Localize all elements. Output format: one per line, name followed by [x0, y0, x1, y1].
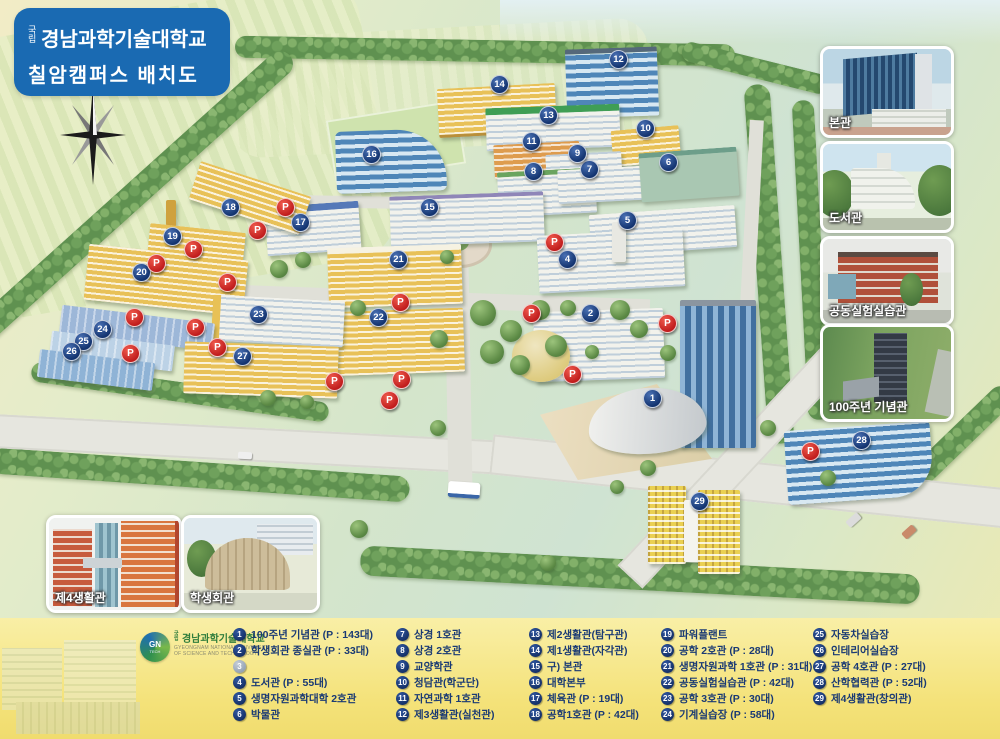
legend-item: 27공학 4호관 (P : 27대) [813, 658, 927, 674]
parking-marker: P [380, 391, 399, 410]
legend-item-number: 5 [233, 692, 246, 705]
photo-100th-hall: 100주년 기념관 [820, 324, 954, 422]
legend-item: 10청담관(학군단) [396, 674, 494, 690]
legend-item-number: 20 [661, 644, 674, 657]
legend-item: 8상경 2호관 [396, 642, 494, 658]
legend-item-number: 4 [233, 676, 246, 689]
photo-label: 본관 [829, 114, 851, 131]
building-marker-4: 4 [558, 250, 577, 269]
building-marker-14: 14 [490, 75, 509, 94]
photo-bonkwan: 본관 [820, 46, 954, 138]
legend-item-number: 14 [529, 644, 542, 657]
legend-item: 15구) 본관 [529, 658, 639, 674]
legend-item-number: 23 [661, 692, 674, 705]
legend-item: 28산학협력관 (P : 52대) [813, 674, 927, 690]
building-marker-10: 10 [636, 119, 655, 138]
legend-item: 26인테리어실습장 [813, 642, 927, 658]
legend-item-label: 청담관(학군단) [414, 675, 479, 690]
parking-marker: P [276, 198, 295, 217]
building-marker-13: 13 [539, 106, 558, 125]
legend-item: 11자연과학 1호관 [396, 690, 494, 706]
legend-item-number: 28 [813, 676, 826, 689]
legend-item-number: 25 [813, 628, 826, 641]
legend-item: 24기계실습장 (P : 58대) [661, 706, 812, 722]
legend-item-label: 상경 2호관 [414, 643, 461, 658]
photo-label: 학생회관 [190, 589, 234, 606]
photo-doseogwan: 도서관 [820, 141, 954, 233]
legend-item-number: 7 [396, 628, 409, 641]
legend-item: 21생명자원과학 1호관 (P : 31대) [661, 658, 812, 674]
parking-marker: P [392, 370, 411, 389]
legend-item-number: 19 [661, 628, 674, 641]
legend-column: 1100주년 기념관 (P : 143대)2학생회관 종실관 (P : 33대)… [233, 626, 373, 722]
legend-item: 2학생회관 종실관 (P : 33대) [233, 642, 373, 658]
legend-item-number: 12 [396, 708, 409, 721]
parking-marker: P [248, 221, 267, 240]
legend-item: 7상경 1호관 [396, 626, 494, 642]
legend-item: 13제2생활관(탐구관) [529, 626, 639, 642]
photo-building-tower [121, 521, 183, 607]
legend-item-label: 교양학관 [414, 659, 453, 674]
parking-marker: P [522, 304, 541, 323]
building-marker-7: 7 [580, 160, 599, 179]
photo-skybridge [83, 558, 122, 567]
photo-label: 도서관 [829, 209, 862, 226]
legend-band: GN TECH 국립경남과학기술대학교 GYEONGNAM NATIONAL U… [0, 618, 1000, 739]
parking-marker: P [801, 442, 820, 461]
building-marker-6: 6 [659, 153, 678, 172]
legend-item-label: 학생회관 종실관 (P : 33대) [251, 643, 369, 658]
legend-item-number: 24 [661, 708, 674, 721]
legend-item-number: 22 [661, 676, 674, 689]
legend-item: 14제1생활관(자각관) [529, 642, 639, 658]
building-marker-18: 18 [221, 198, 240, 217]
legend-item-number: 16 [529, 676, 542, 689]
photo-building [915, 54, 932, 111]
legend-item-number: 1 [233, 628, 246, 641]
legend-column: 7상경 1호관8상경 2호관9교양학관10청담관(학군단)11자연과학 1호관1… [396, 626, 494, 722]
photo-building [828, 274, 856, 299]
legend-item-number: 17 [529, 692, 542, 705]
parking-marker: P [147, 254, 166, 273]
legend-item-label: 산학협력관 (P : 52대) [831, 675, 927, 690]
legend-item-number: 27 [813, 660, 826, 673]
photo-student-hall: 학생회관 [181, 515, 320, 613]
legend-item: 4도서관 (P : 55대) [233, 674, 373, 690]
legend-item-label: 자동차실습장 [831, 627, 889, 642]
legend-item-label: 인테리어실습장 [831, 643, 899, 658]
legend-item: 3 [233, 658, 373, 674]
building-marker-8: 8 [524, 162, 543, 181]
legend-item-label: 제4생활관(창의관) [831, 691, 911, 706]
parking-marker: P [208, 338, 227, 357]
parking-marker: P [325, 372, 344, 391]
building-marker-1: 1 [643, 389, 662, 408]
legend-item: 19파워플랜트 [661, 626, 812, 642]
parking-marker: P [658, 314, 677, 333]
building-marker-22: 22 [369, 308, 388, 327]
legend-column: 25자동차실습장26인테리어실습장27공학 4호관 (P : 27대)28산학협… [813, 626, 927, 706]
building-marker-23: 23 [249, 305, 268, 324]
legend-item: 22공동실험실습관 (P : 42대) [661, 674, 812, 690]
building-marker-26: 26 [62, 342, 81, 361]
building-marker-15: 15 [420, 198, 439, 217]
legend-item-number: 6 [233, 708, 246, 721]
legend-item-label: 공학 3호관 (P : 30대) [679, 691, 774, 706]
parking-marker: P [218, 273, 237, 292]
legend-item-number: 3 [233, 660, 246, 673]
legend-item: 18공학1호관 (P : 42대) [529, 706, 639, 722]
legend-item-label: 도서관 (P : 55대) [251, 675, 327, 690]
legend-column: 19파워플랜트20공학 2호관 (P : 28대)21생명자원과학 1호관 (P… [661, 626, 812, 722]
building-marker-29: 29 [690, 492, 709, 511]
legend-item-number: 26 [813, 644, 826, 657]
legend-item-number: 21 [661, 660, 674, 673]
legend-item-label: 공학1호관 (P : 42대) [547, 707, 639, 722]
legend-item-label: 구) 본관 [547, 659, 582, 674]
legend-item: 23공학 3호관 (P : 30대) [661, 690, 812, 706]
legend-item-number: 2 [233, 644, 246, 657]
legend-item-label: 생명자원과학대학 2호관 [251, 691, 356, 706]
legend-item-number: 8 [396, 644, 409, 657]
legend-item-number: 18 [529, 708, 542, 721]
legend-item-label: 제3생활관(실천관) [414, 707, 494, 722]
legend-item: 25자동차실습장 [813, 626, 927, 642]
legend-item-number: 10 [396, 676, 409, 689]
legend-item: 16대학본부 [529, 674, 639, 690]
legend-item-label: 체육관 (P : 19대) [547, 691, 623, 706]
legend-item-label: 파워플랜트 [679, 627, 727, 642]
building-marker-28: 28 [852, 431, 871, 450]
building-marker-2: 2 [581, 304, 600, 323]
photo-label: 제4생활관 [55, 589, 106, 606]
photo-label: 공동실험실습관 [829, 302, 906, 319]
building-marker-9: 9 [568, 144, 587, 163]
legend-item: 12제3생활관(실천관) [396, 706, 494, 722]
legend-item-label: 박물관 [251, 707, 280, 722]
parking-marker: P [121, 344, 140, 363]
building-marker-16: 16 [362, 145, 381, 164]
legend-item-label: 자연과학 1호관 [414, 691, 481, 706]
photo-label: 100주년 기념관 [829, 398, 908, 415]
legend-item-label: 제1생활관(자각관) [547, 643, 627, 658]
legend-item-label: 공학 2호관 (P : 28대) [679, 643, 774, 658]
campus-map-poster: 1245678910111213141516171819202122232425… [0, 0, 1000, 739]
building-marker-21: 21 [389, 250, 408, 269]
legend-item: 1100주년 기념관 (P : 143대) [233, 626, 373, 642]
legend-item-label: 제2생활관(탐구관) [547, 627, 627, 642]
photo-building-tower [874, 333, 907, 403]
legend-item-label: 100주년 기념관 (P : 143대) [251, 627, 373, 642]
legend-column: 13제2생활관(탐구관)14제1생활관(자각관)15구) 본관16대학본부17체… [529, 626, 639, 722]
legend-item-label: 공학 4호관 (P : 27대) [831, 659, 926, 674]
parking-marker: P [391, 293, 410, 312]
photo-building [872, 109, 946, 128]
legend-item-number: 13 [529, 628, 542, 641]
legend-item-label: 기계실습장 (P : 58대) [679, 707, 775, 722]
building-marker-12: 12 [609, 50, 628, 69]
building-marker-11: 11 [522, 132, 541, 151]
legend-item-number: 29 [813, 692, 826, 705]
legend-item: 29제4생활관(창의관) [813, 690, 927, 706]
legend-item-label: 생명자원과학 1호관 (P : 31대) [679, 659, 812, 674]
poster-title: 국립경남과학기술대학교 칠암캠퍼스 배치도 [14, 8, 230, 96]
legend-item: 5생명자원과학대학 2호관 [233, 690, 373, 706]
parking-marker: P [545, 233, 564, 252]
legend-item-label: 공동실험실습관 (P : 42대) [679, 675, 794, 690]
compass-star-icon [60, 85, 126, 189]
building-marker-24: 24 [93, 320, 112, 339]
photo-dorm4: 제4생활관 [46, 515, 182, 613]
legend-item: 9교양학관 [396, 658, 494, 674]
parking-marker: P [186, 318, 205, 337]
parking-marker: P [563, 365, 582, 384]
legend-item: 6박물관 [233, 706, 373, 722]
legend-item: 20공학 2호관 (P : 28대) [661, 642, 812, 658]
parking-marker: P [125, 308, 144, 327]
national-affix: 국립 [28, 26, 39, 44]
legend-item-number: 11 [396, 692, 409, 705]
legend-item-number: 9 [396, 660, 409, 673]
poster-subtitle: 칠암캠퍼스 배치도 [28, 59, 230, 88]
building-marker-5: 5 [618, 211, 637, 230]
photo-building [843, 53, 917, 116]
university-emblem-icon: GN TECH [140, 632, 170, 662]
legend-item-label: 상경 1호관 [414, 627, 461, 642]
building-marker-19: 19 [163, 227, 182, 246]
legend-item: 17체육관 (P : 19대) [529, 690, 639, 706]
legend-item-label: 대학본부 [547, 675, 586, 690]
legend-item-number: 15 [529, 660, 542, 673]
photo-gongdong-lab: 공동실험실습관 [820, 236, 954, 326]
university-name: 국립경남과학기술대학교 [28, 23, 230, 52]
building-marker-27: 27 [233, 347, 252, 366]
building-marker-17: 17 [291, 213, 310, 232]
parking-marker: P [184, 240, 203, 259]
